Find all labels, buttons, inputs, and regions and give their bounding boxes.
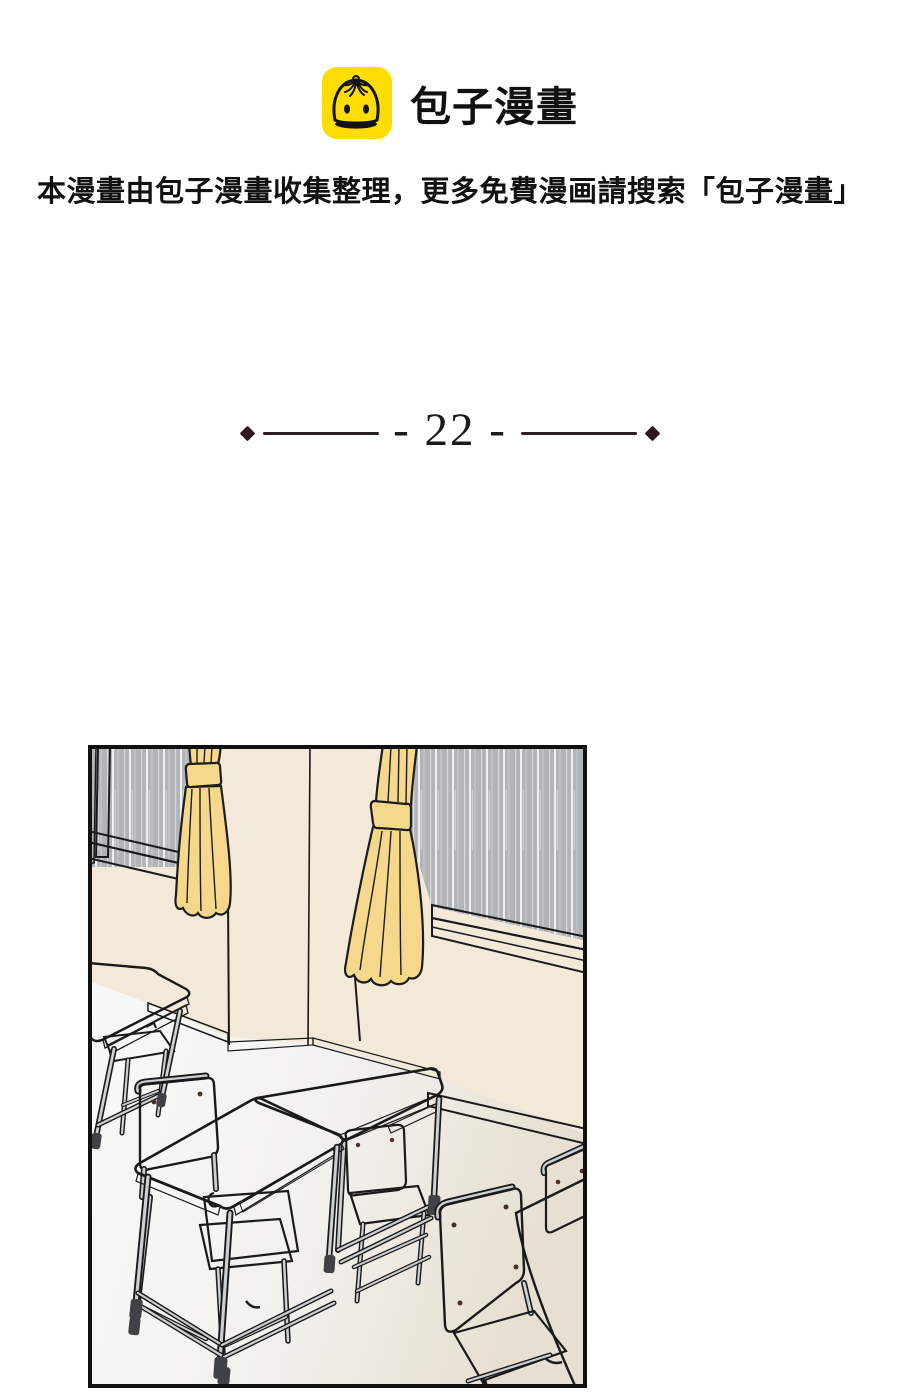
classroom-illustration — [88, 745, 587, 1388]
chapter-number: - 22 - — [393, 403, 507, 457]
brand-name: 包子漫畫 — [410, 73, 578, 133]
brand-header: 包子漫畫 — [0, 64, 900, 142]
diamond-ornament-right — [645, 425, 661, 441]
collection-notice: 本漫畫由包子漫畫收集整理，更多免費漫画請搜索「包子漫畫」 — [0, 168, 900, 210]
comic-panel-classroom — [88, 745, 587, 1388]
diamond-ornament-left — [240, 425, 256, 441]
chapter-divider: - 22 - — [0, 401, 900, 465]
comic-page: { "header": { "logo_text": "包子漫畫", "logo… — [0, 0, 900, 1399]
baozi-bun-icon — [322, 66, 392, 140]
divider-rule-right — [521, 432, 637, 435]
curtain-tieback — [371, 801, 411, 830]
divider-rule-left — [263, 432, 379, 435]
curtain-tieback — [186, 763, 221, 787]
